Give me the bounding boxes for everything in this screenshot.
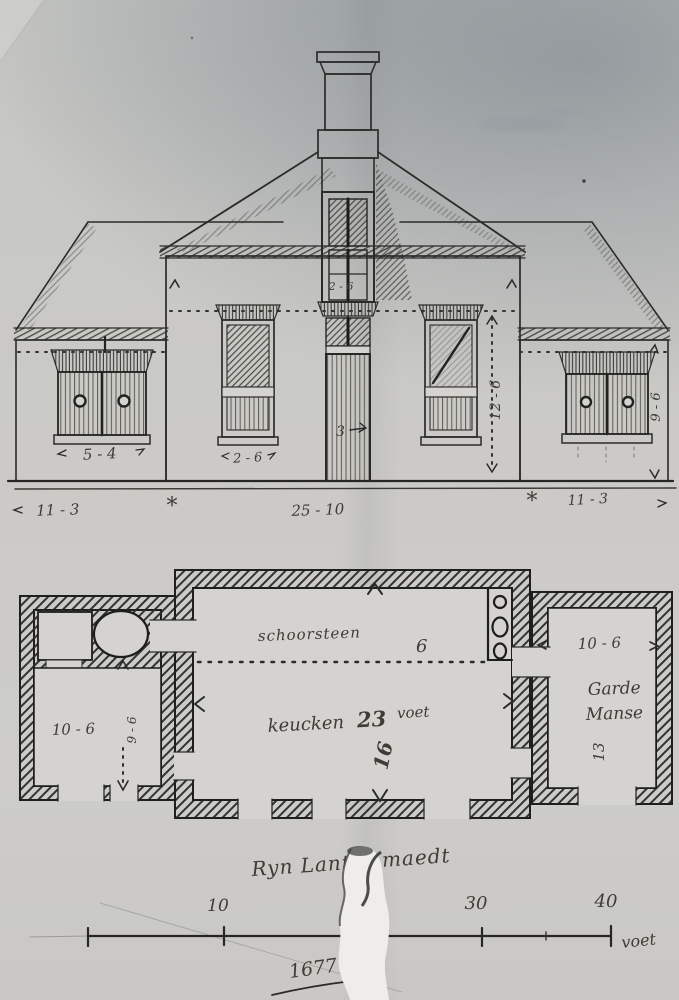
- date-underline: [272, 981, 352, 995]
- tear-top-smudge: [347, 846, 373, 856]
- main-window-left: 2 - 6: [216, 305, 280, 467]
- scale-label-40: 40: [594, 891, 618, 912]
- door-leaf: [326, 354, 370, 481]
- pantry-name-line2: Manse: [584, 703, 643, 725]
- opening: [174, 752, 194, 780]
- right-eaves-band: [518, 328, 670, 340]
- opening: [58, 785, 104, 801]
- left-wing-roof: [14, 222, 283, 340]
- left-hip-shading: [20, 224, 97, 330]
- ground-separator-right: *: [527, 489, 538, 514]
- scale-label-10: 10: [207, 896, 229, 916]
- window-sill: [421, 437, 481, 445]
- pantry-depth: 13: [590, 742, 608, 761]
- dim-gable-window-width: 2 - 6: [328, 280, 354, 293]
- ground-arrow-left: [14, 507, 22, 513]
- opening: [424, 799, 470, 819]
- pantry-width: 10 - 6: [578, 633, 622, 653]
- ink-speck: [582, 179, 585, 182]
- window-shutter: [430, 397, 472, 430]
- kitchen-unit: voet: [397, 702, 431, 722]
- main-roof-left-slope: [160, 152, 318, 252]
- left-room-depth: 9 - 6: [125, 716, 139, 743]
- pantry-name-line1: Garde: [587, 678, 640, 700]
- window-glass: [227, 325, 269, 387]
- shutter-hole-left: [581, 397, 591, 407]
- tear-patch: [339, 846, 390, 1000]
- chimney-flange: [320, 62, 376, 74]
- chimney-collar: [318, 130, 378, 158]
- shutter-hole-right: [119, 396, 130, 407]
- dim-ground-right: 11 - 3: [567, 491, 608, 509]
- smudge-mark-2: [540, 108, 580, 116]
- door-rail: [326, 346, 370, 354]
- kitchen-interior: [193, 588, 512, 800]
- paper-tear: [339, 846, 390, 1000]
- scale-label-30: 30: [465, 893, 488, 914]
- dim-facade-height: 12 - 6: [488, 380, 504, 420]
- scale-line-faint: [30, 936, 88, 937]
- window-lintel: [559, 352, 655, 374]
- oven-oval: [94, 611, 148, 657]
- right-hip-shading: [582, 224, 666, 330]
- smudge-mark: [479, 117, 567, 131]
- dim-door-width: 3: [336, 424, 345, 440]
- kitchen-width: 23: [355, 706, 387, 733]
- hearth-label: schoorsteen: [258, 623, 362, 645]
- elevation-drawing: 2 - 6 3 2 - 6: [8, 52, 676, 520]
- opening: [511, 748, 531, 778]
- roof-shading-left: [176, 168, 336, 252]
- facade-height-dim: 12 - 6: [487, 316, 504, 472]
- opening: [578, 787, 636, 805]
- archival-photo: 2 - 6 3 2 - 6: [0, 0, 679, 1000]
- ink-speck-2: [191, 37, 193, 39]
- photo-artifacts: [0, 0, 586, 183]
- left-hip: [16, 222, 88, 330]
- date-inscription: 1677: [288, 954, 340, 983]
- main-window-right: [419, 305, 483, 445]
- window-lintel: [216, 305, 280, 320]
- window-sill: [562, 434, 652, 443]
- dim-left-wing-window-width: 5 - 4: [82, 444, 117, 464]
- front-door: 3: [318, 302, 378, 481]
- chimney-cap: [317, 52, 379, 62]
- scale-unit: voet: [620, 929, 657, 952]
- shutter-hole-left: [75, 396, 86, 407]
- left-eaves-band: [14, 328, 168, 340]
- window-lintel: [51, 350, 153, 372]
- left-room-width: 10 - 6: [52, 719, 96, 739]
- door-lintel: [318, 302, 378, 316]
- window-rail: [222, 387, 274, 397]
- opening: [312, 799, 346, 819]
- ground-line-lower: [15, 488, 676, 489]
- window-sill: [218, 437, 278, 445]
- window-shutter: [227, 397, 269, 430]
- main-roof-right-slope: [378, 152, 525, 252]
- opening: [238, 799, 272, 819]
- right-wing-roof: [400, 222, 670, 340]
- window-sill: [54, 435, 150, 444]
- drawing-svg: 2 - 6 3 2 - 6: [0, 0, 679, 1000]
- dim-ground-left: 11 - 3: [36, 500, 80, 519]
- corner-mark-right: [507, 280, 516, 288]
- shutter-hole-right: [623, 397, 633, 407]
- window-rail: [425, 387, 477, 397]
- passage-right: [512, 647, 550, 677]
- oven-square: [38, 612, 92, 660]
- floor-plan: schoorsteen 6 keucken 23 voet 16 10 - 6 …: [20, 570, 672, 819]
- dim-main-window-width: 2 - 6: [232, 450, 263, 467]
- hearth-depth: 6: [416, 636, 427, 657]
- window-lintel: [419, 305, 483, 320]
- ground-line: 11 - 3 * 25 - 10 * 11 - 3: [8, 481, 676, 520]
- dim-ground-center: 25 - 10: [290, 500, 345, 520]
- dim-wing-height: 9 - 6: [649, 392, 664, 421]
- corner-mark-left: [170, 280, 179, 288]
- ground-separator-left: *: [167, 494, 178, 519]
- right-hip: [592, 222, 668, 330]
- chimney-shaft: [325, 74, 371, 130]
- right-wing-window: 9 - 6: [559, 345, 664, 478]
- left-wing-window: 5 - 4: [51, 337, 153, 464]
- passage-left: [150, 620, 196, 652]
- kitchen-name: keucken: [267, 712, 344, 737]
- ground-arrow-right: [658, 500, 666, 507]
